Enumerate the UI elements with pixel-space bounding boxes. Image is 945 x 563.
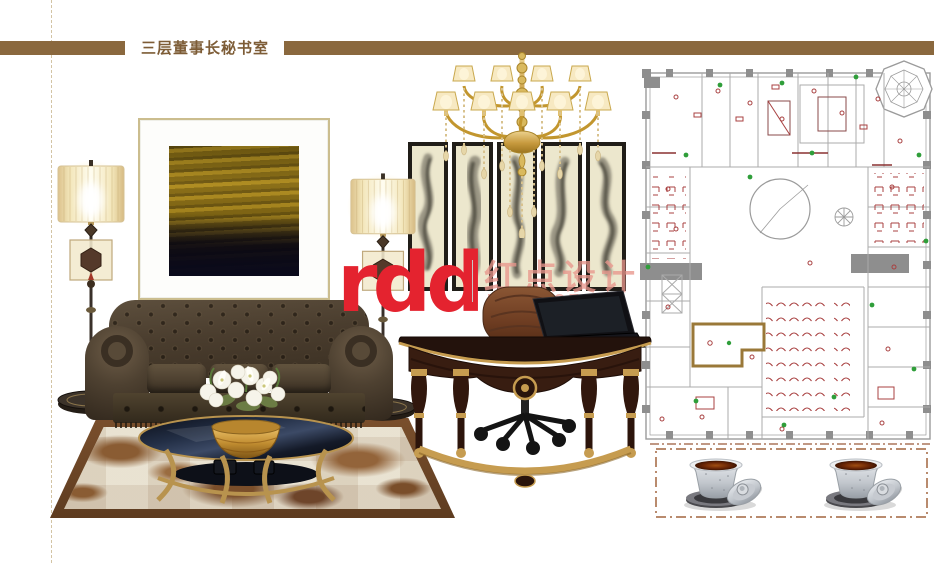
chandelier-body	[504, 131, 540, 176]
lower-shelf	[174, 462, 318, 486]
abstract-gold-painting	[138, 118, 330, 300]
crescent-executive-desk	[395, 285, 655, 500]
crystal-chandelier	[430, 50, 614, 238]
desk-stretcher	[419, 449, 631, 487]
lamp-glow	[371, 195, 394, 230]
page-title: 三层董事长秘书室	[125, 37, 285, 58]
lamp-glow	[79, 182, 103, 218]
moodboard-page: 三层董事长秘书室	[0, 0, 945, 563]
floor-plan	[632, 57, 940, 447]
header-bar-left	[0, 41, 125, 55]
tea-set-box	[655, 448, 928, 518]
painting-canvas	[169, 146, 299, 276]
lily-bouquet-coffee-table	[136, 358, 356, 508]
